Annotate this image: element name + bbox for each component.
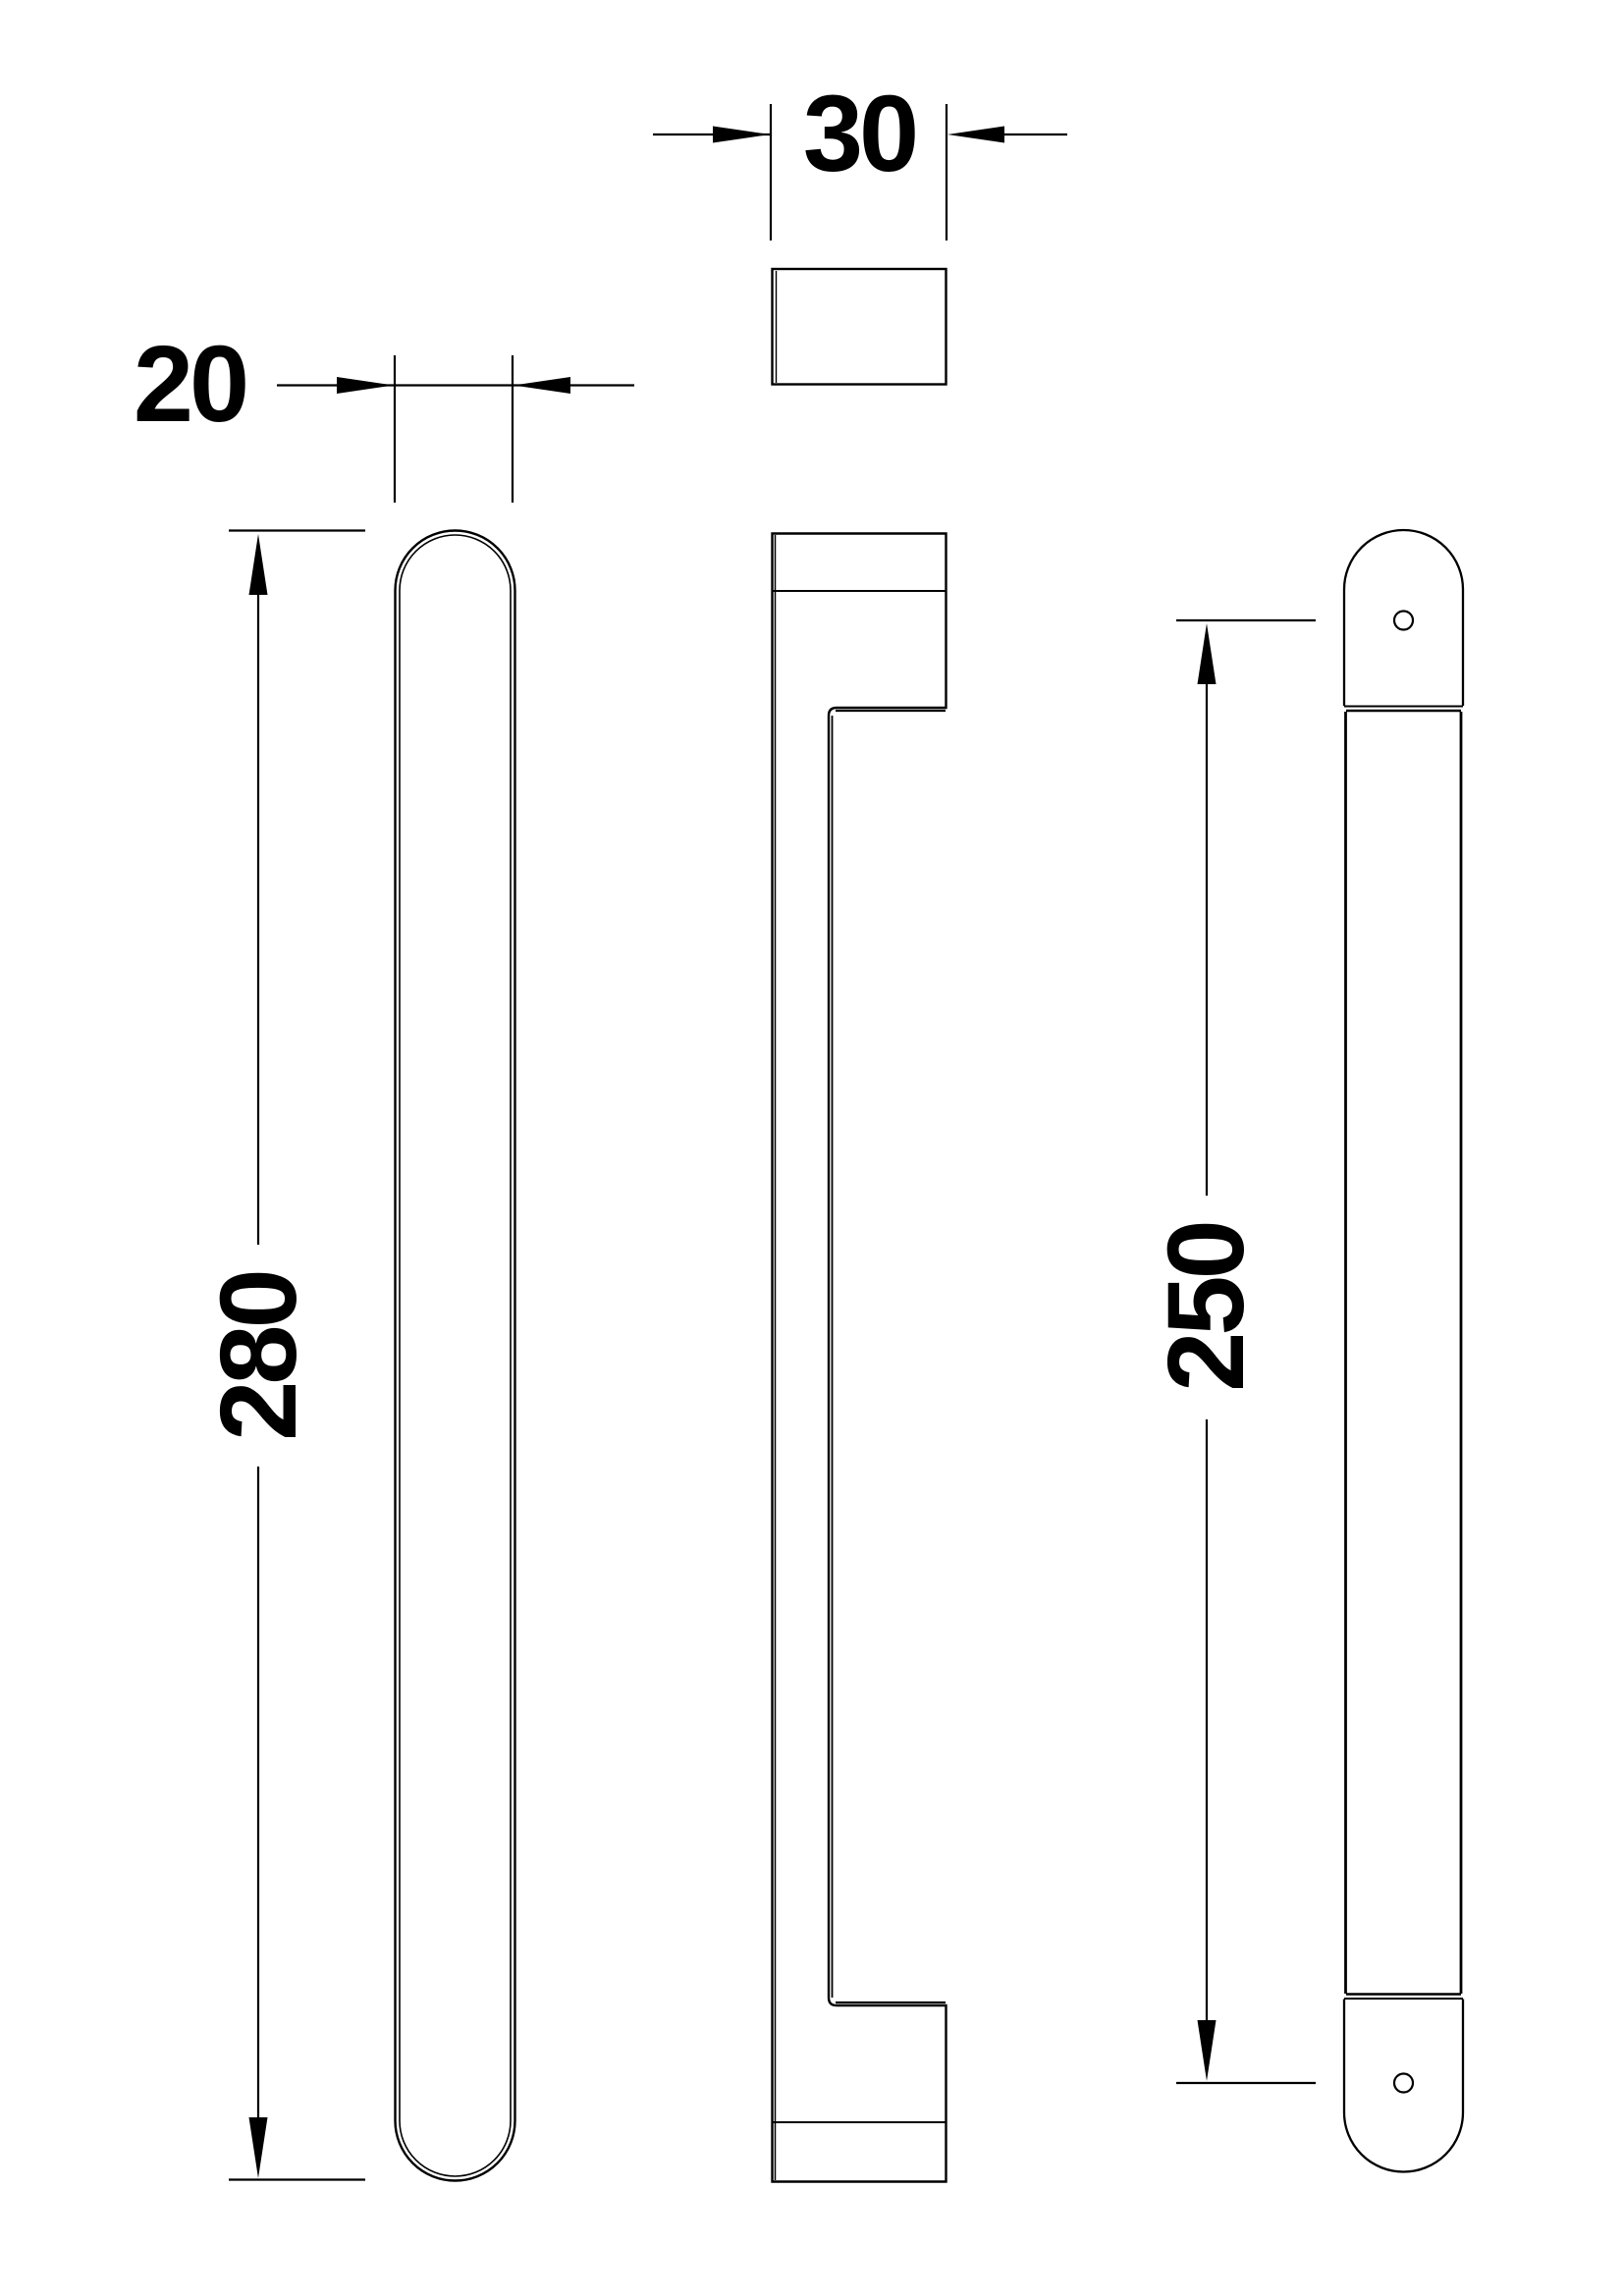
front-view-grip-outline [396, 531, 515, 2181]
cross-section-outline [773, 269, 947, 385]
arrowhead-up-icon [1198, 623, 1217, 684]
back-view-mounting-plate [1344, 530, 1463, 2172]
technical-drawing-canvas: 20 30 280 250 [0, 0, 1623, 2296]
dimension-label-section-depth: 30 [803, 80, 915, 188]
screw-hole-top [1394, 612, 1413, 630]
side-view-profile [773, 534, 947, 2182]
side-profile-outline [773, 534, 947, 2182]
bottom-cap-outline [1344, 2000, 1463, 2172]
grip-inner-contour [400, 535, 511, 2176]
arrowhead-left-icon [514, 377, 570, 394]
arrowhead-right-icon [337, 377, 394, 394]
arrowhead-down-icon [249, 2117, 268, 2178]
grip-outer-contour [396, 531, 515, 2181]
dimension-label-grip-width: 20 [134, 331, 245, 439]
arrowhead-down-icon [1198, 2020, 1217, 2081]
top-cap-outline [1344, 530, 1463, 706]
plan-view-cross-section [773, 269, 947, 385]
arrowhead-right-icon [713, 127, 770, 143]
dimension-20 [277, 355, 634, 503]
dimension-label-fixing-centres: 250 [1153, 1223, 1261, 1392]
arrowhead-up-icon [249, 534, 268, 595]
arrowhead-left-icon [947, 127, 1004, 143]
dimension-label-overall-length: 280 [205, 1272, 313, 1441]
screw-hole-bottom [1394, 2074, 1413, 2093]
